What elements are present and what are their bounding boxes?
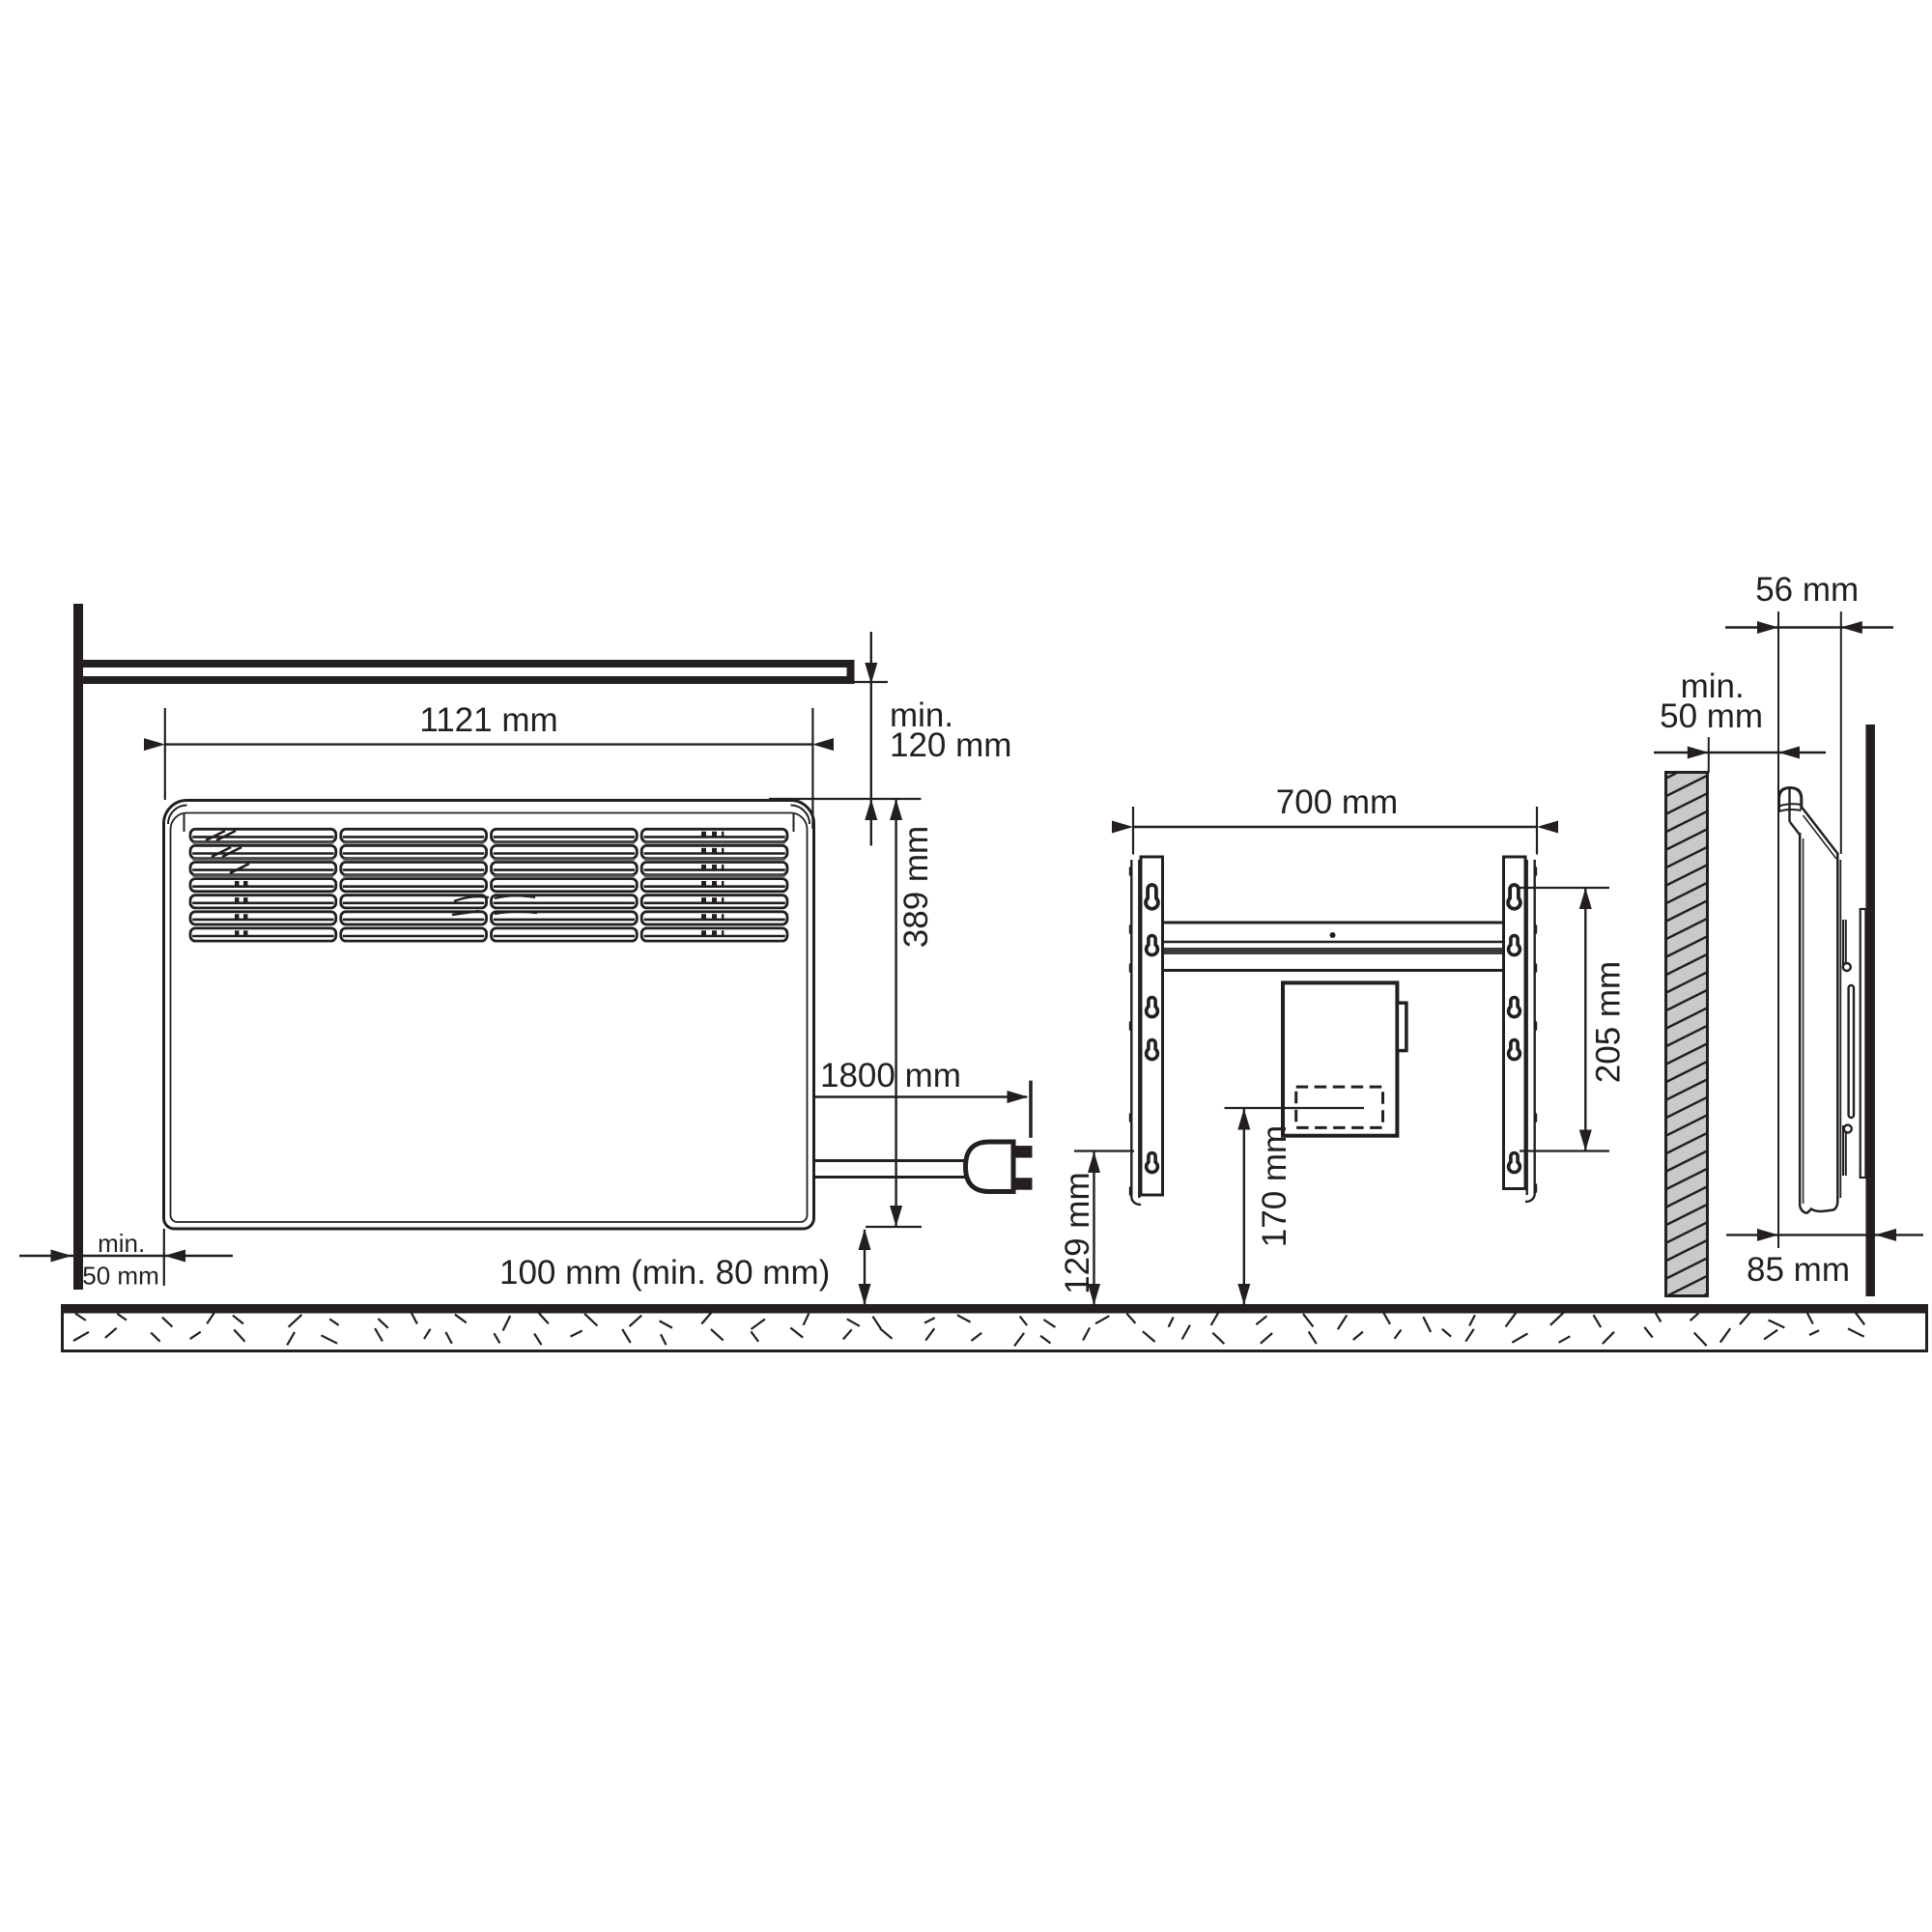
svg-text:100 mm (min. 80 mm): 100 mm (min. 80 mm) <box>499 1254 830 1292</box>
svg-text:700 mm: 700 mm <box>1276 783 1398 821</box>
svg-text:1800 mm: 1800 mm <box>820 1057 961 1094</box>
svg-text:56 mm: 56 mm <box>1755 571 1859 609</box>
svg-text:389 mm: 389 mm <box>897 826 935 948</box>
svg-text:129 mm: 129 mm <box>1059 1172 1096 1293</box>
svg-text:120 mm: 120 mm <box>890 726 1011 764</box>
svg-text:50 mm: 50 mm <box>82 1262 158 1291</box>
svg-text:205 mm: 205 mm <box>1590 961 1628 1083</box>
svg-text:1121 mm: 1121 mm <box>419 701 557 739</box>
svg-text:170 mm: 170 mm <box>1256 1125 1293 1247</box>
svg-text:85 mm: 85 mm <box>1747 1251 1850 1289</box>
svg-text:50 mm: 50 mm <box>1660 697 1763 735</box>
svg-text:min.: min. <box>98 1229 145 1258</box>
